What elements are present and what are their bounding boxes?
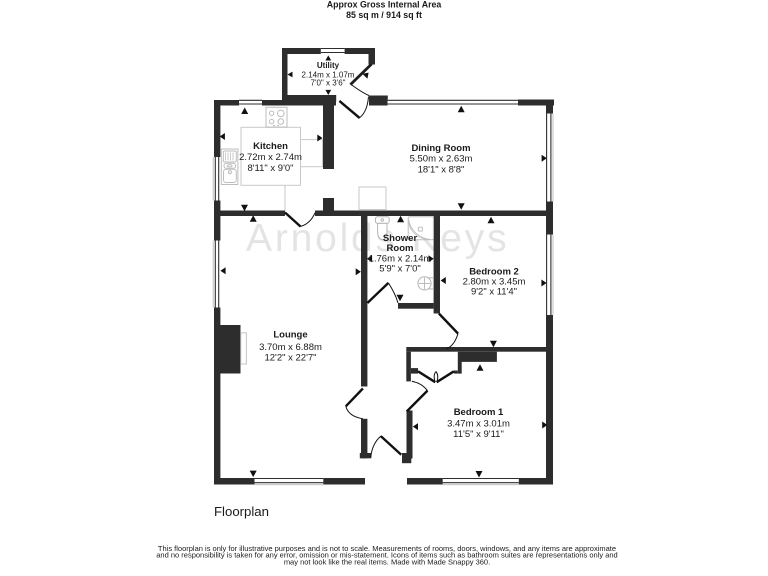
svg-text:Floorplan: Floorplan	[214, 504, 269, 519]
svg-text:5'9" x 7'0": 5'9" x 7'0"	[379, 264, 421, 275]
svg-text:12'2" x 22'7": 12'2" x 22'7"	[264, 353, 316, 364]
svg-text:5.50m x 2.63m: 5.50m x 2.63m	[410, 154, 473, 165]
svg-text:8'11" x 9'0": 8'11" x 9'0"	[247, 163, 293, 174]
svg-text:18'1" x 8'8": 18'1" x 8'8"	[418, 164, 465, 175]
svg-text:Bedroom 1: Bedroom 1	[454, 407, 504, 418]
svg-text:2.72m x 2.74m: 2.72m x 2.74m	[239, 152, 302, 163]
svg-text:85 sq m / 914 sq ft: 85 sq m / 914 sq ft	[346, 10, 422, 20]
svg-text:Approx Gross Internal Area: Approx Gross Internal Area	[327, 0, 442, 10]
svg-text:9'2" x 11'4": 9'2" x 11'4"	[471, 286, 517, 297]
svg-text:Lounge: Lounge	[273, 330, 307, 341]
svg-text:Dining Room: Dining Room	[411, 143, 470, 154]
svg-text:3.47m x 3.01m: 3.47m x 3.01m	[447, 419, 510, 430]
svg-text:3.70m x 6.88m: 3.70m x 6.88m	[259, 342, 322, 353]
svg-text:7'0" x 3'6": 7'0" x 3'6"	[311, 79, 346, 88]
svg-text:Room: Room	[387, 243, 414, 254]
svg-text:may not look like the real ite: may not look like the real items. Made w…	[284, 557, 490, 566]
svg-text:Utility: Utility	[317, 61, 340, 70]
svg-text:Kitchen: Kitchen	[253, 141, 288, 152]
svg-text:11'5" x 9'11": 11'5" x 9'11"	[453, 429, 504, 440]
